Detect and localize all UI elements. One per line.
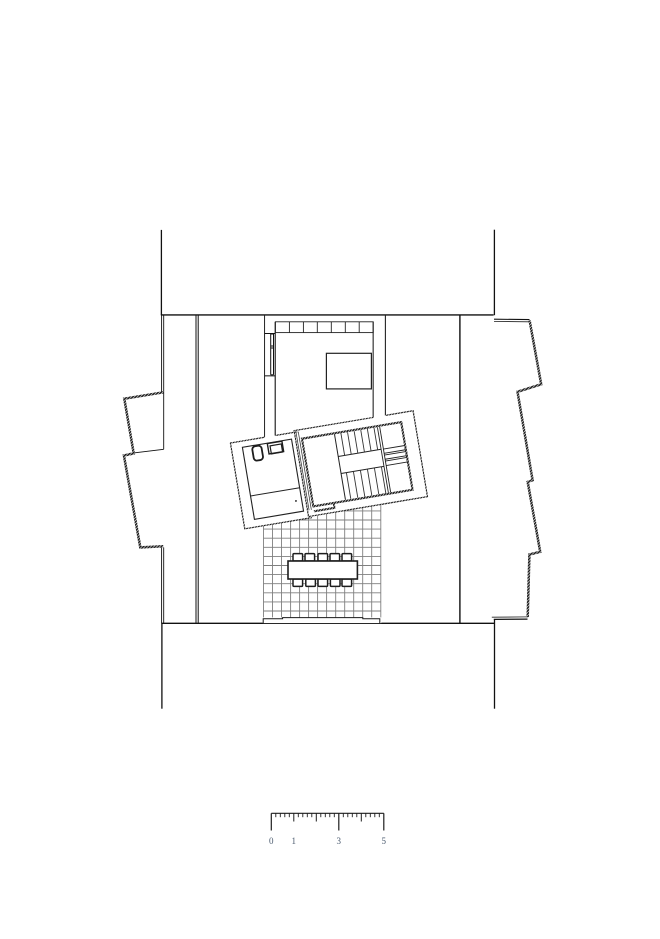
svg-text:1: 1 — [292, 836, 297, 846]
svg-text:5: 5 — [382, 836, 387, 846]
svg-text:3: 3 — [337, 836, 342, 846]
svg-text:0: 0 — [269, 836, 274, 846]
